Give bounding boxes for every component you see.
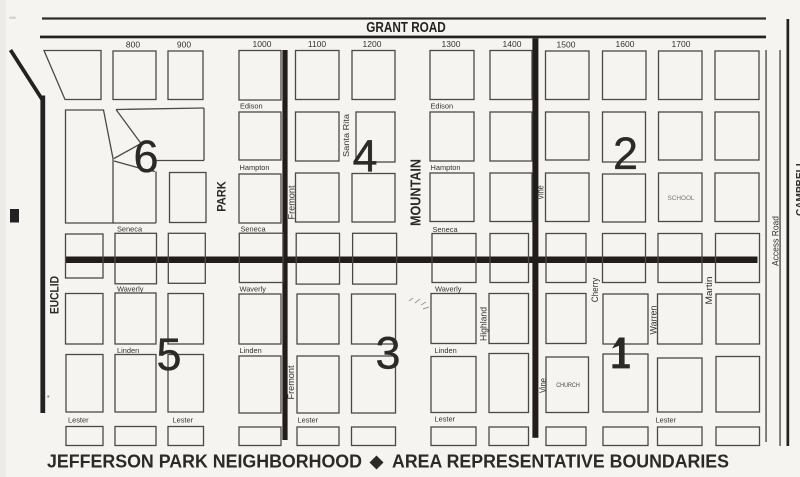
svg-text:Waverly: Waverly: [117, 285, 144, 294]
svg-text:1700: 1700: [672, 39, 691, 49]
svg-text:Seneca: Seneca: [241, 225, 267, 234]
svg-text:Linden: Linden: [240, 346, 262, 355]
svg-text:MOUNTAIN: MOUNTAIN: [408, 159, 425, 226]
svg-text:EUCLID: EUCLID: [48, 276, 62, 314]
svg-text:SCHOOL: SCHOOL: [668, 195, 695, 202]
svg-text:5: 5: [156, 329, 181, 380]
svg-text:GRANT ROAD: GRANT ROAD: [366, 20, 446, 36]
svg-text:Lester: Lester: [656, 416, 677, 425]
svg-text:Cherry: Cherry: [590, 277, 600, 302]
svg-text:900: 900: [177, 40, 191, 50]
svg-text:3: 3: [375, 328, 400, 379]
svg-text:800: 800: [126, 40, 140, 50]
svg-text:Seneca: Seneca: [433, 225, 459, 234]
svg-text:1500: 1500: [557, 40, 576, 50]
svg-text:1100: 1100: [308, 39, 327, 49]
svg-text:Access Road: Access Road: [771, 216, 781, 266]
svg-text:Lester: Lester: [173, 416, 194, 425]
svg-text:Linden: Linden: [117, 346, 139, 355]
svg-text:Lester: Lester: [298, 416, 319, 425]
svg-text:1600: 1600: [616, 39, 635, 49]
svg-text:Linden: Linden: [435, 346, 457, 355]
svg-text:Edison: Edison: [240, 102, 263, 111]
svg-text:1000: 1000: [253, 39, 272, 49]
svg-text:1200: 1200: [363, 39, 382, 49]
svg-text:1300: 1300: [442, 39, 461, 49]
svg-text:AREA REPRESENTATIVE BOUNDARIES: AREA REPRESENTATIVE BOUNDARIES: [392, 451, 729, 472]
svg-text:JEFFERSON PARK NEIGHBORHOOD: JEFFERSON PARK NEIGHBORHOOD: [47, 451, 362, 472]
svg-text:Edison: Edison: [431, 102, 454, 111]
svg-text:PARK: PARK: [215, 181, 229, 212]
svg-text:Santa Rita: Santa Rita: [341, 114, 351, 157]
svg-text:6: 6: [133, 131, 158, 182]
svg-text:Martin: Martin: [704, 277, 714, 305]
svg-text:CAMPBELL: CAMPBELL: [795, 160, 800, 216]
svg-text:Highland: Highland: [479, 307, 489, 341]
svg-text:Hampton: Hampton: [431, 163, 461, 172]
svg-text:Waverly: Waverly: [240, 285, 267, 294]
svg-text:Vine: Vine: [536, 185, 546, 200]
svg-text:Hampton: Hampton: [240, 163, 270, 172]
svg-text:4: 4: [352, 131, 377, 182]
svg-text:Waverly: Waverly: [435, 285, 462, 294]
svg-text:Seneca: Seneca: [117, 225, 143, 234]
svg-text:Lester: Lester: [435, 415, 456, 424]
svg-text:2: 2: [613, 128, 638, 179]
svg-text:Lester: Lester: [68, 416, 89, 425]
svg-text:1400: 1400: [503, 39, 522, 49]
svg-text:Fremont: Fremont: [286, 365, 296, 399]
svg-text:CHURCH: CHURCH: [556, 382, 580, 389]
